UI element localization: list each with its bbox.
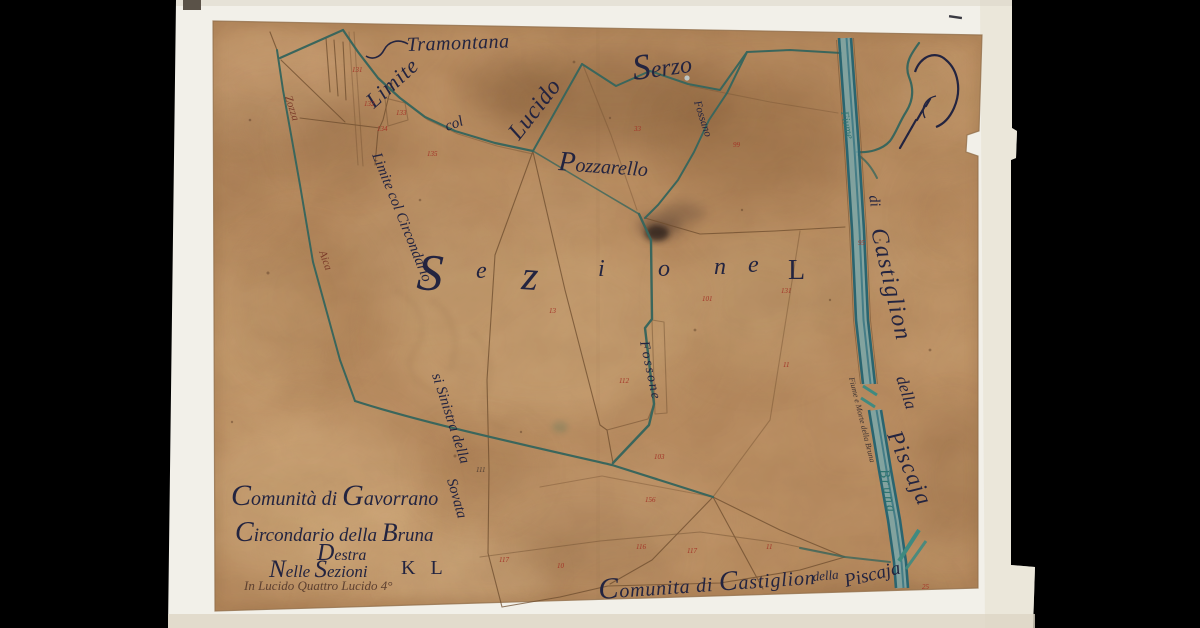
svg-text:103: 103 xyxy=(654,453,665,461)
svg-text:n: n xyxy=(714,254,726,280)
svg-text:K L: K L xyxy=(401,557,448,579)
svg-text:13: 13 xyxy=(549,307,557,315)
svg-text:131: 131 xyxy=(352,66,363,74)
svg-text:131: 131 xyxy=(781,287,792,295)
svg-text:z: z xyxy=(519,253,540,300)
svg-text:In Lucido Quattro Lucido 4°: In Lucido Quattro Lucido 4° xyxy=(243,578,392,593)
svg-text:i: i xyxy=(598,256,605,282)
svg-text:117: 117 xyxy=(499,556,509,564)
svg-text:111: 111 xyxy=(476,466,485,474)
svg-text:101: 101 xyxy=(702,295,713,303)
svg-text:10: 10 xyxy=(557,562,565,570)
svg-text:11: 11 xyxy=(783,361,789,369)
svg-text:117: 117 xyxy=(687,547,697,555)
svg-text:25: 25 xyxy=(922,583,930,591)
svg-text:della: della xyxy=(812,567,840,584)
svg-text:33: 33 xyxy=(633,125,642,133)
svg-text:o: o xyxy=(658,256,670,282)
svg-text:L: L xyxy=(788,255,805,286)
svg-text:95: 95 xyxy=(858,239,866,247)
svg-text:11: 11 xyxy=(766,543,772,551)
svg-text:e: e xyxy=(476,258,487,284)
svg-text:112: 112 xyxy=(619,377,629,385)
svg-text:132: 132 xyxy=(364,100,375,108)
svg-text:116: 116 xyxy=(636,543,646,551)
svg-text:134: 134 xyxy=(377,125,388,133)
svg-text:99: 99 xyxy=(733,141,741,149)
svg-text:Tramontana: Tramontana xyxy=(406,30,510,56)
svg-text:156: 156 xyxy=(645,496,656,504)
svg-text:e: e xyxy=(748,252,759,278)
svg-text:135: 135 xyxy=(427,150,438,158)
svg-text:133: 133 xyxy=(396,109,407,117)
